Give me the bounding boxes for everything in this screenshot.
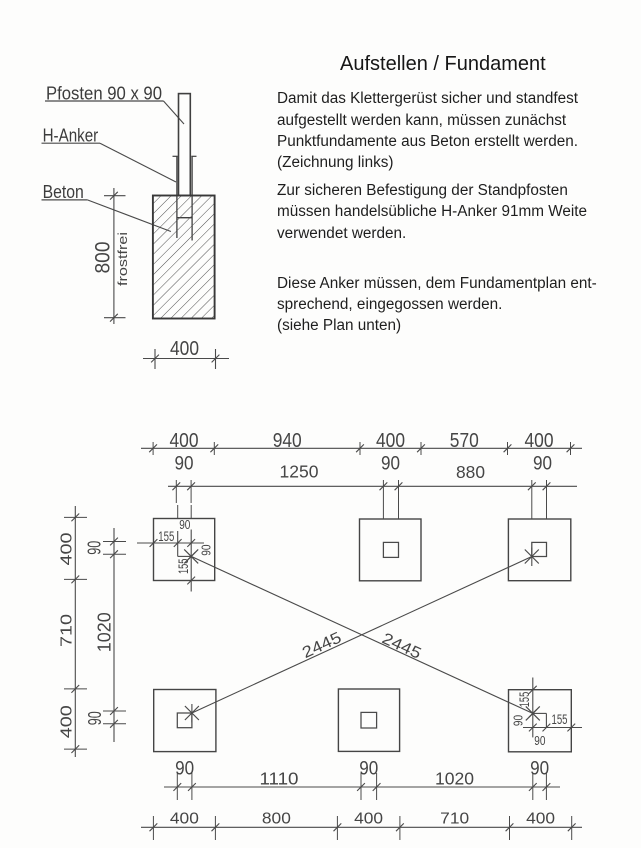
svg-text:90: 90: [530, 759, 549, 780]
svg-text:90: 90: [359, 759, 378, 780]
svg-text:400: 400: [376, 430, 405, 452]
svg-text:155: 155: [552, 711, 568, 727]
svg-text:155: 155: [517, 692, 532, 708]
svg-text:400: 400: [170, 811, 199, 828]
svg-text:90: 90: [179, 518, 190, 532]
svg-text:H-Anker: H-Anker: [43, 125, 99, 145]
svg-text:90: 90: [175, 759, 194, 780]
svg-text:400: 400: [170, 338, 199, 360]
svg-text:400: 400: [170, 430, 199, 452]
svg-text:400: 400: [59, 532, 76, 565]
svg-text:710: 710: [59, 614, 76, 647]
svg-text:2445: 2445: [300, 629, 344, 662]
svg-text:940: 940: [273, 430, 302, 452]
svg-text:90: 90: [85, 711, 105, 725]
svg-text:Beton: Beton: [43, 182, 84, 202]
svg-text:400: 400: [525, 430, 554, 452]
svg-text:1110: 1110: [260, 769, 299, 789]
svg-text:1020: 1020: [95, 612, 115, 652]
svg-text:90: 90: [199, 544, 213, 555]
svg-text:90: 90: [381, 454, 400, 475]
svg-text:800: 800: [92, 242, 115, 274]
svg-text:155: 155: [158, 528, 174, 544]
svg-text:400: 400: [59, 705, 76, 738]
svg-text:710: 710: [440, 811, 469, 828]
svg-text:400: 400: [354, 811, 383, 828]
svg-text:90: 90: [534, 734, 545, 748]
svg-text:2445: 2445: [379, 630, 423, 663]
svg-text:frostfrei: frostfrei: [116, 232, 130, 286]
svg-text:400: 400: [526, 811, 555, 828]
svg-text:90: 90: [84, 541, 104, 555]
svg-text:90: 90: [511, 715, 525, 726]
svg-text:880: 880: [456, 462, 485, 482]
svg-text:90: 90: [175, 454, 194, 475]
svg-text:800: 800: [262, 811, 291, 828]
svg-text:90: 90: [533, 454, 552, 475]
svg-text:1250: 1250: [280, 462, 319, 482]
svg-text:570: 570: [450, 430, 479, 452]
svg-text:155: 155: [176, 559, 191, 575]
svg-text:1020: 1020: [435, 769, 474, 789]
